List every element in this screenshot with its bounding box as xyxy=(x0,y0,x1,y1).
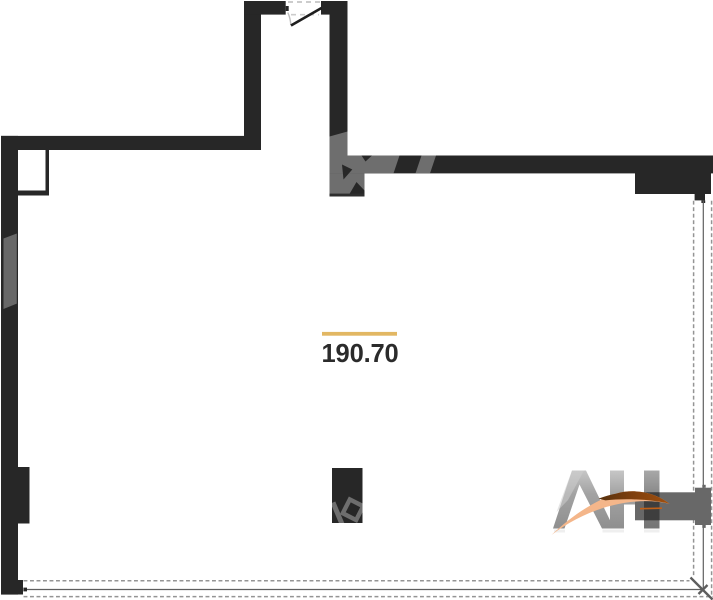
svg-text:190.70: 190.70 xyxy=(322,340,399,368)
